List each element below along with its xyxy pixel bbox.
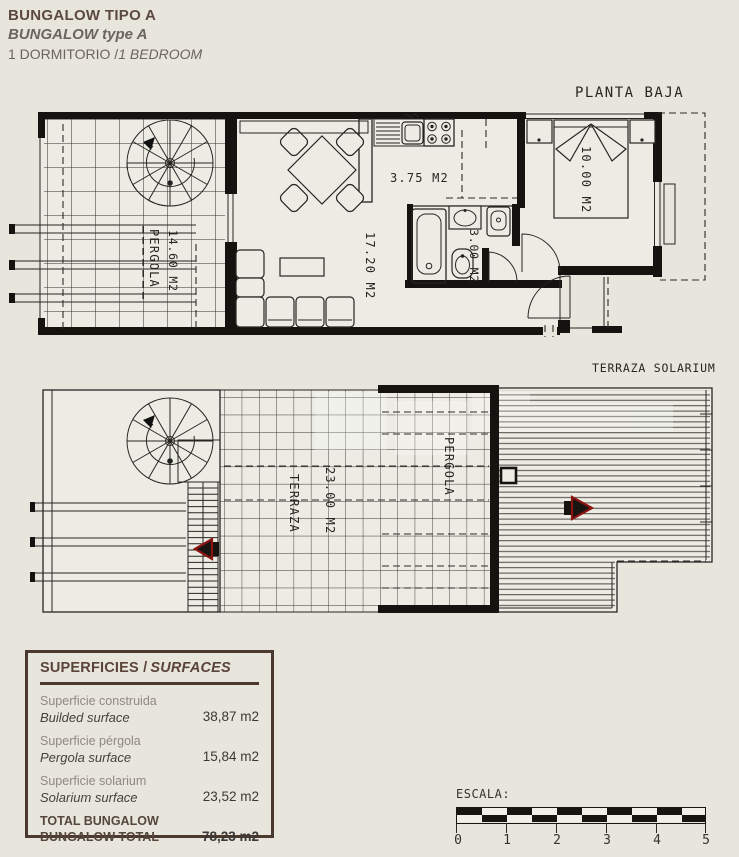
bath-area-label: 3.00 M2 — [467, 229, 481, 283]
scale-bar: ESCALA: 0 1 2 3 4 5 — [456, 787, 718, 801]
pergola-label: PERGOLA — [147, 229, 161, 288]
total-label-es: TOTAL BUNGALOW — [40, 814, 159, 830]
roof-spiral-staircase — [127, 398, 213, 484]
row-label-es: Superficie construida — [40, 694, 157, 710]
surfaces-table: SUPERFICIES /SURFACES Superficie constru… — [25, 650, 274, 838]
scale-tick-3: 3 — [603, 833, 611, 848]
chimney-box — [501, 468, 516, 483]
scale-tick-5: 5 — [702, 833, 710, 848]
terrace-area-label: 23.00 M2 — [323, 467, 337, 534]
total-label-en: BUNGALOW TOTAL — [40, 830, 159, 846]
scale-label: ESCALA: — [456, 787, 718, 801]
pergola-area-label: 14.60 M2 — [166, 230, 180, 292]
bathroom-sink — [449, 206, 481, 229]
table-total-row: TOTAL BUNGALOWBUNGALOW TOTAL 78,23 m2 — [40, 814, 259, 845]
row-label-es: Superficie solarium — [40, 774, 146, 790]
plan-sheet: BUNGALOW TIPO A BUNGALOW type A 1 DORMIT… — [0, 0, 739, 857]
scale-checker-bar — [456, 807, 706, 824]
row-label-en: Solarium surface — [40, 790, 146, 806]
terraza-solarium-plan — [30, 385, 712, 613]
surfaces-table-title: SUPERFICIES /SURFACES — [40, 660, 259, 685]
table-row: Superficie solariumSolarium surface 23,5… — [40, 774, 259, 805]
living-area-label: 17.20 M2 — [363, 232, 377, 299]
row-value: 15,84 m2 — [203, 749, 259, 765]
surfaces-title-en: SURFACES — [150, 660, 231, 676]
bidet — [487, 207, 510, 236]
kitchen-area-label: 3.75 M2 — [390, 171, 449, 185]
planta-baja-plan — [9, 112, 705, 337]
bedroom-area-label: 10.00 M2 — [579, 146, 593, 213]
row-value: 23,52 m2 — [203, 789, 259, 805]
row-label-es: Superficie pérgola — [40, 734, 141, 750]
coffee-table — [280, 258, 324, 276]
pergola-tile-grid — [44, 116, 225, 331]
terrace-label: TERRAZA — [287, 474, 301, 533]
table-row: Superficie construidaBuilded surface 38,… — [40, 694, 259, 725]
scale-tick-1: 1 — [503, 833, 511, 848]
total-value: 78,23 m2 — [202, 829, 259, 845]
table-row: Superficie pérgolaPergola surface 15,84 … — [40, 734, 259, 765]
row-value: 38,87 m2 — [203, 709, 259, 725]
planta-baja-label: PLANTA BAJA — [575, 85, 684, 101]
row-label-en: Pergola surface — [40, 750, 141, 766]
scale-tick-4: 4 — [653, 833, 661, 848]
terraza-solarium-label: TERRAZA SOLARIUM — [592, 361, 716, 375]
surfaces-title-es: SUPERFICIES / — [40, 660, 147, 676]
dining-table — [278, 126, 365, 213]
scale-tick-0: 0 — [454, 833, 462, 848]
row-label-en: Builded surface — [40, 710, 157, 726]
roof-pergola-label: PERGOLA — [442, 437, 456, 496]
scale-ticks — [456, 824, 708, 834]
scale-tick-2: 2 — [553, 833, 561, 848]
